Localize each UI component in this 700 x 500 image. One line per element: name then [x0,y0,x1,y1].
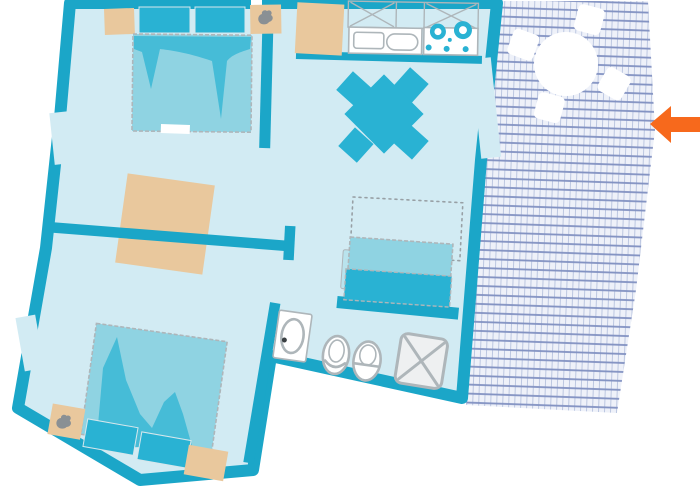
wardrobe-rug [115,173,215,274]
sink-basin [354,32,384,49]
dining-set [334,65,432,165]
pillow [139,7,190,33]
pillow [195,7,245,33]
left-arrow-icon [650,106,700,143]
sink-basin [387,34,418,51]
bed-sheet-notch [161,124,190,134]
nightstand [104,8,135,35]
kitchen-counter [295,2,345,55]
floor-plan-page: Apartment floor plan Terrace with round … [0,0,700,500]
washbasin [273,310,312,362]
terrace-round-table [534,32,598,96]
wall-tcap [283,226,295,261]
floor-plan-svg: Apartment floor plan Terrace with round … [0,0,700,500]
shower [394,333,448,390]
direction-arrow: Orange arrow pointing left toward the te… [650,106,700,143]
